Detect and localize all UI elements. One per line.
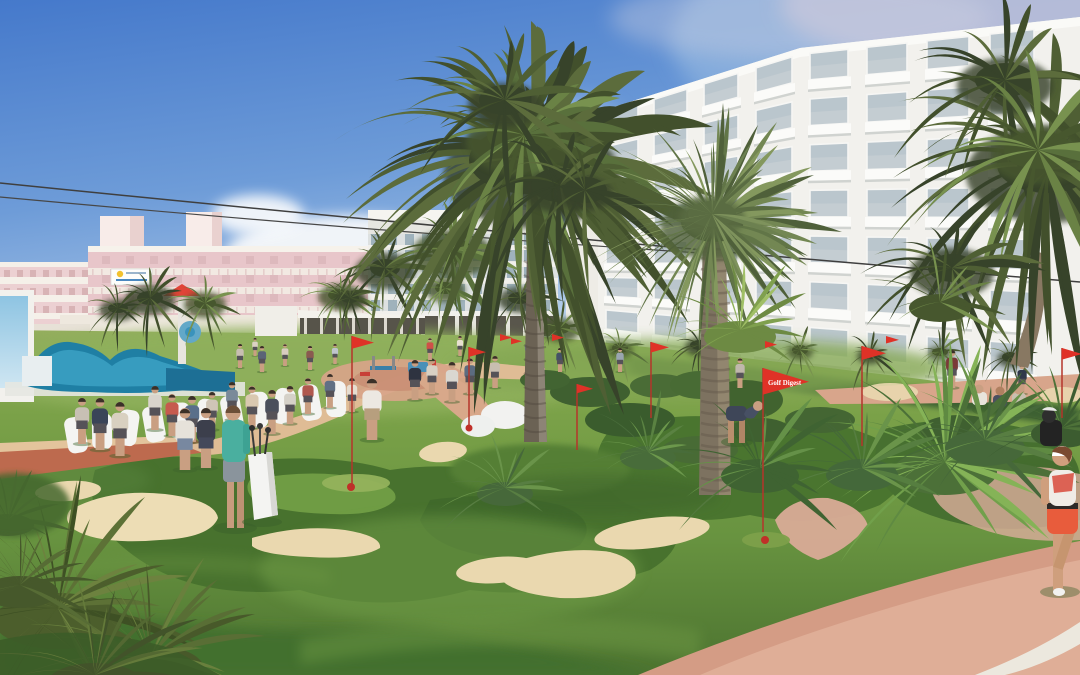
svg-text:Golf Digest: Golf Digest <box>768 380 802 387</box>
